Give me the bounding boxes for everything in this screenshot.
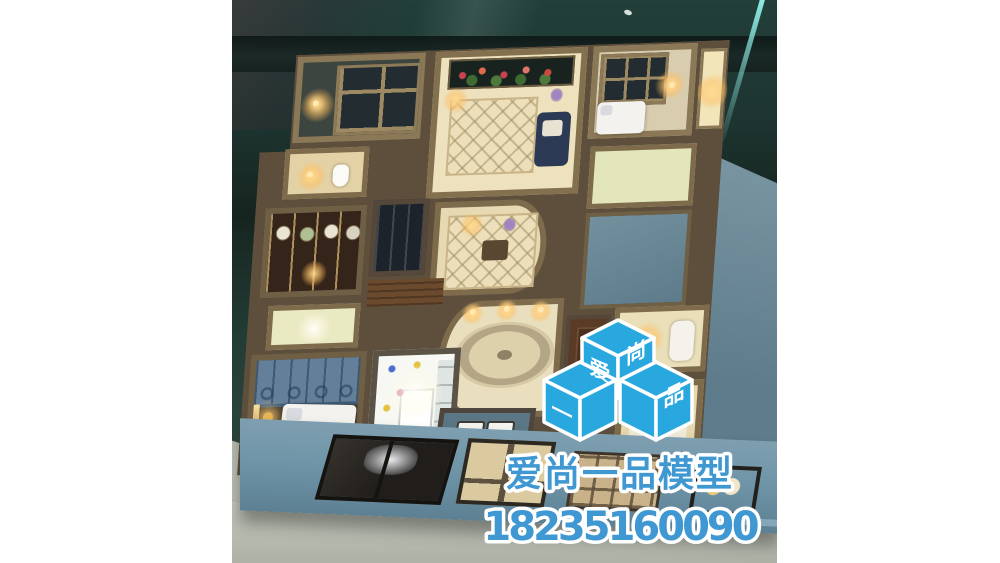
toilet bbox=[332, 164, 350, 187]
paneled-wardrobe bbox=[254, 357, 361, 408]
pale-green-room bbox=[587, 143, 697, 209]
facade-window-dark bbox=[315, 434, 460, 505]
bed-pillow bbox=[600, 105, 613, 115]
purple-plant bbox=[550, 88, 563, 102]
hallway-wood-floor bbox=[366, 278, 444, 307]
decor-plate bbox=[323, 224, 339, 240]
bedroom-bed bbox=[596, 101, 646, 135]
bed-pillow bbox=[285, 408, 302, 420]
living-room bbox=[426, 47, 588, 199]
watermark-phone: 18235160090 bbox=[483, 504, 757, 550]
balcony-room bbox=[292, 53, 426, 144]
aishang-yipin-cube-logo: 爱 尚 一 品 bbox=[538, 316, 698, 448]
decor-plate bbox=[275, 225, 291, 241]
blue-exterior-block bbox=[580, 209, 693, 309]
decor-plate bbox=[345, 225, 361, 241]
left-bathroom bbox=[282, 147, 369, 200]
flower-window-box bbox=[447, 55, 575, 89]
dark-panel-closet bbox=[368, 198, 429, 276]
balcony-window-grid bbox=[332, 63, 421, 136]
dining-room bbox=[429, 198, 550, 296]
watermark-text: 爱尚一品模型 18235160090 bbox=[470, 446, 770, 558]
decor-plate bbox=[299, 226, 315, 242]
pale-corridor bbox=[266, 303, 361, 350]
top-right-bedroom bbox=[587, 43, 697, 139]
sofa-throw bbox=[542, 120, 563, 137]
watermark-title: 爱尚一品模型 bbox=[506, 454, 734, 495]
page-canvas: 爱 尚 一 品 爱尚一品模型 18235160090 bbox=[0, 0, 1000, 563]
dining-table bbox=[481, 240, 508, 261]
sofa bbox=[534, 111, 572, 166]
plate-display-room bbox=[259, 205, 367, 299]
candle-glow bbox=[300, 260, 328, 287]
corridor-glow bbox=[295, 313, 333, 344]
